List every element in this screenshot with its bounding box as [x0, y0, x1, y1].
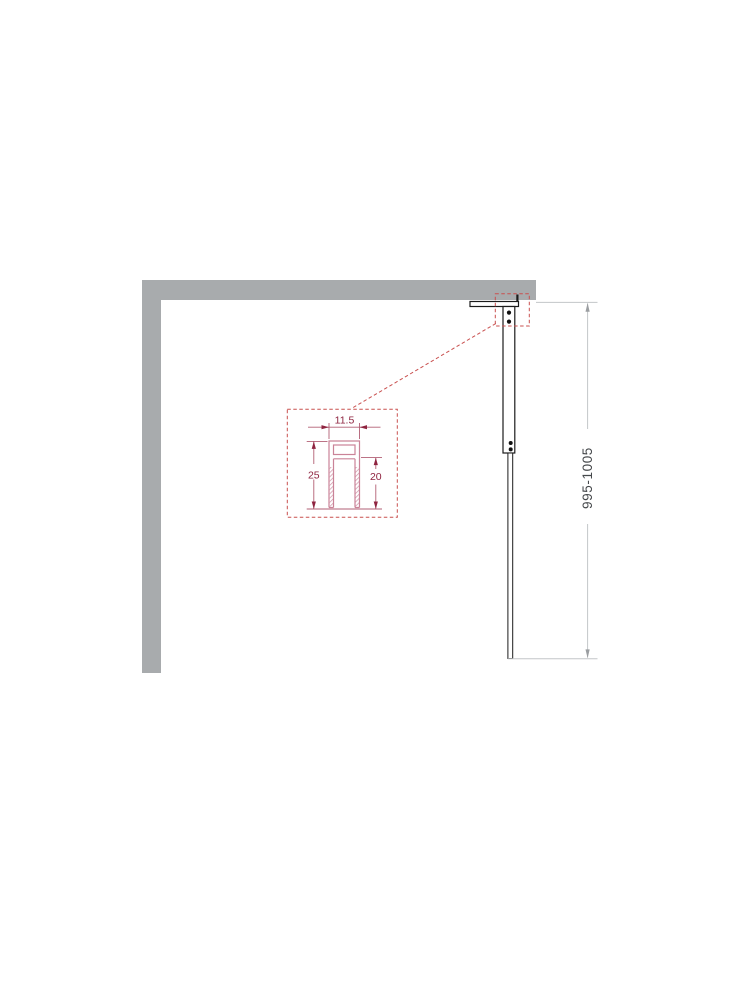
wall-mount-profile-post [503, 307, 515, 454]
panel-assembly [470, 295, 519, 659]
arrow-up-icon [312, 441, 316, 449]
bracket-wall-lip [516, 295, 518, 302]
height-dimension-label: 25 [308, 470, 320, 482]
screw-dot [509, 441, 513, 445]
detail-callout [287, 294, 529, 518]
screw-dot [509, 447, 513, 451]
profile-top-chamber [334, 445, 356, 455]
width-dimension-label: 11.5 [335, 415, 355, 427]
arrow-right-icon [322, 425, 330, 429]
technical-drawing-page: 11.5 25 20 995-1005 [0, 0, 750, 1000]
wall-section [142, 280, 536, 673]
profile-left-leg-hatch [330, 467, 333, 507]
slot-depth-dimension-label: 20 [370, 471, 382, 483]
callout-leader-line [352, 324, 496, 409]
wall-bracket-bar [470, 302, 519, 307]
arrow-down-icon [374, 502, 378, 510]
arrow-down-icon [586, 649, 590, 658]
arrow-up-icon [374, 458, 378, 466]
wall-left [142, 280, 161, 673]
profile-cross-section [329, 441, 360, 508]
profile-right-leg-hatch [356, 467, 360, 507]
panel-height-dimension-label: 995-1005 [580, 447, 595, 509]
arrow-up-icon [586, 303, 590, 312]
arrow-down-icon [312, 502, 316, 510]
wall-top [142, 280, 536, 300]
arrow-left-icon [360, 425, 368, 429]
profile-dimensions [307, 423, 382, 509]
slot-depth-dimension [361, 458, 382, 509]
installation-diagram: 11.5 25 20 995-1005 [0, 0, 750, 1000]
screw-dot [507, 311, 511, 315]
glass-panel-edge [508, 453, 513, 659]
screw-dot [507, 320, 511, 324]
